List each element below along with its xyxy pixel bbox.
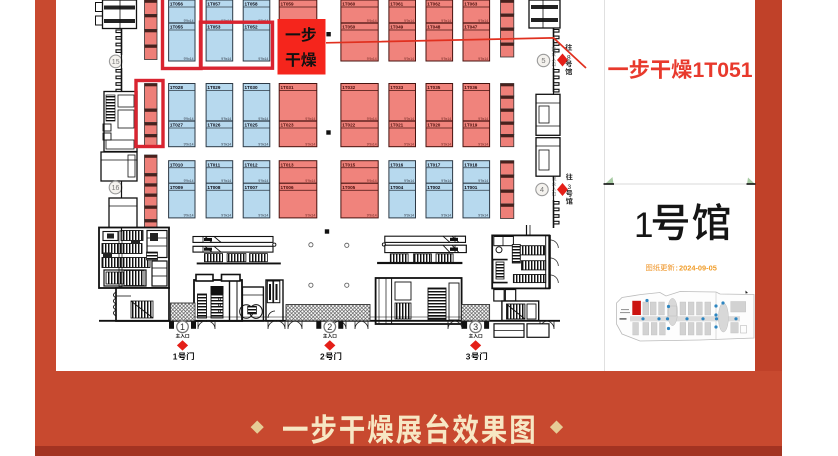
svg-text:1T012: 1T012: [245, 162, 258, 167]
svg-text:1T027: 1T027: [170, 123, 183, 128]
svg-text:9'9x14: 9'9x14: [478, 57, 488, 61]
svg-text:1T019: 1T019: [464, 123, 477, 128]
svg-text:9'9x14: 9'9x14: [184, 214, 194, 218]
svg-text:1T002: 1T002: [427, 185, 440, 190]
svg-text:1T061: 1T061: [390, 2, 403, 7]
svg-text:2: 2: [327, 322, 332, 332]
svg-text:2024-09-05: 2024-09-05: [679, 263, 717, 272]
svg-text:1T058: 1T058: [245, 2, 258, 7]
svg-text:1T026: 1T026: [207, 123, 220, 128]
svg-text:1T006: 1T006: [281, 185, 294, 190]
svg-text:15: 15: [112, 59, 120, 66]
svg-text:1T007: 1T007: [245, 185, 258, 190]
svg-text:1T011: 1T011: [207, 162, 220, 167]
svg-text:1T010: 1T010: [170, 162, 183, 167]
svg-text:1T016: 1T016: [390, 162, 403, 167]
svg-text:1T028: 1T028: [170, 85, 183, 90]
svg-text:9'9x14: 9'9x14: [404, 117, 414, 121]
svg-text:9'9x14: 9'9x14: [221, 117, 231, 121]
svg-text:9'9x14: 9'9x14: [441, 19, 451, 23]
svg-text:9'9x14: 9'9x14: [404, 143, 414, 147]
svg-text:1T048: 1T048: [427, 25, 440, 30]
svg-text:9'9x14: 9'9x14: [441, 117, 451, 121]
svg-text:9'9x14: 9'9x14: [478, 19, 488, 23]
svg-text:9'9x14: 9'9x14: [478, 143, 488, 147]
svg-text:9'9x14: 9'9x14: [441, 57, 451, 61]
svg-text:9'9x14: 9'9x14: [367, 214, 377, 218]
svg-text:1T020: 1T020: [427, 123, 440, 128]
svg-text::: :: [676, 263, 678, 272]
svg-text:9'9x14: 9'9x14: [258, 143, 268, 147]
svg-text:1T060: 1T060: [342, 2, 355, 7]
svg-text:1T023: 1T023: [281, 123, 294, 128]
svg-text:9'9x14: 9'9x14: [184, 179, 194, 183]
svg-text:1T009: 1T009: [170, 185, 183, 190]
svg-text:8: 8: [567, 55, 571, 62]
svg-text:9'9x14: 9'9x14: [258, 214, 268, 218]
svg-text:9'9x14: 9'9x14: [305, 143, 315, 147]
svg-text:9'9x14: 9'9x14: [404, 179, 414, 183]
svg-text:9'9x14: 9'9x14: [221, 179, 231, 183]
svg-text:1T021: 1T021: [390, 123, 403, 128]
svg-text:1T057: 1T057: [207, 2, 220, 7]
svg-text:1T062: 1T062: [427, 2, 440, 7]
svg-text:9'9x14: 9'9x14: [221, 214, 231, 218]
svg-text:9'9x14: 9'9x14: [305, 117, 315, 121]
svg-text:1T015: 1T015: [342, 162, 355, 167]
svg-text:9'9x14: 9'9x14: [404, 214, 414, 218]
svg-text:1: 1: [180, 322, 185, 332]
svg-text:1T025: 1T025: [245, 123, 258, 128]
svg-text:9'9x14: 9'9x14: [367, 57, 377, 61]
svg-text:9'9x14: 9'9x14: [404, 57, 414, 61]
svg-text:1T033: 1T033: [390, 85, 403, 90]
svg-text:9'9x14: 9'9x14: [221, 57, 231, 61]
svg-text:1T052: 1T052: [245, 25, 258, 30]
svg-text:1T035: 1T035: [427, 85, 440, 90]
svg-text:1T001: 1T001: [464, 185, 477, 190]
svg-text:9'9x14: 9'9x14: [184, 57, 194, 61]
svg-text:1T051: 1T051: [693, 59, 753, 82]
svg-text:1T029: 1T029: [207, 85, 220, 90]
svg-text:1T047: 1T047: [464, 25, 477, 30]
svg-text:9'9x14: 9'9x14: [258, 57, 268, 61]
svg-text:9'9x14: 9'9x14: [478, 117, 488, 121]
svg-text:9'9x14: 9'9x14: [367, 179, 377, 183]
svg-text:5: 5: [541, 56, 545, 65]
svg-text:9'9x14: 9'9x14: [478, 179, 488, 183]
svg-text:3: 3: [568, 184, 572, 191]
svg-text:9'9x14: 9'9x14: [258, 179, 268, 183]
svg-text:1T018: 1T018: [464, 162, 477, 167]
svg-text:1T050: 1T050: [342, 25, 355, 30]
svg-text:1T063: 1T063: [464, 2, 477, 7]
svg-text:4: 4: [540, 185, 544, 194]
svg-text:9'9x14: 9'9x14: [367, 143, 377, 147]
svg-text:1: 1: [173, 351, 178, 361]
svg-text:9'9x14: 9'9x14: [478, 214, 488, 218]
svg-text:9'9x14: 9'9x14: [221, 143, 231, 147]
svg-text:1T032: 1T032: [342, 85, 355, 90]
svg-text:3: 3: [473, 322, 478, 332]
svg-text:9'9x14: 9'9x14: [305, 214, 315, 218]
svg-text:9'9x14: 9'9x14: [441, 143, 451, 147]
svg-text:9'9x14: 9'9x14: [441, 214, 451, 218]
svg-text:1T056: 1T056: [170, 2, 183, 7]
svg-text:9'9x14: 9'9x14: [258, 117, 268, 121]
svg-text:1T005: 1T005: [342, 185, 355, 190]
svg-text:1T008: 1T008: [207, 185, 220, 190]
svg-text:9'9x14: 9'9x14: [404, 19, 414, 23]
svg-text:2: 2: [320, 351, 325, 361]
svg-text:1T017: 1T017: [427, 162, 440, 167]
svg-text:1T053: 1T053: [207, 25, 220, 30]
svg-text:9'9x14: 9'9x14: [184, 19, 194, 23]
svg-text:1T059: 1T059: [281, 2, 294, 7]
svg-text:1T036: 1T036: [464, 85, 477, 90]
svg-text:9'9x14: 9'9x14: [305, 179, 315, 183]
svg-text:1T049: 1T049: [390, 25, 403, 30]
svg-text:9'9x14: 9'9x14: [367, 117, 377, 121]
svg-text:9'9x14: 9'9x14: [184, 117, 194, 121]
svg-text:1T022: 1T022: [342, 123, 355, 128]
svg-text:1T055: 1T055: [170, 25, 183, 30]
svg-text:1: 1: [634, 206, 653, 245]
svg-text:1T013: 1T013: [281, 162, 294, 167]
svg-text:9'9x14: 9'9x14: [184, 143, 194, 147]
svg-text:1T030: 1T030: [245, 85, 258, 90]
svg-text:9'9x14: 9'9x14: [441, 179, 451, 183]
svg-text:16: 16: [112, 185, 120, 192]
svg-text:1T031: 1T031: [281, 85, 294, 90]
svg-text:9'9x14: 9'9x14: [367, 19, 377, 23]
svg-text:1T004: 1T004: [390, 185, 403, 190]
svg-text:3: 3: [466, 351, 471, 361]
